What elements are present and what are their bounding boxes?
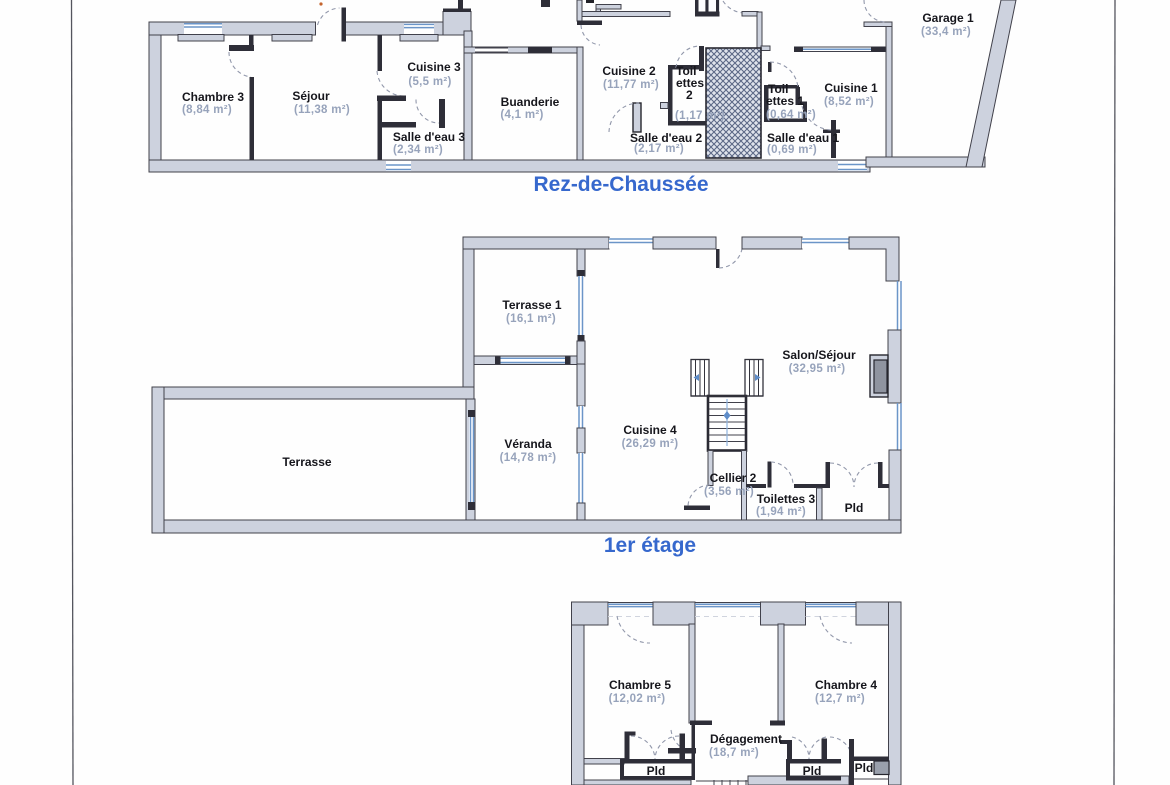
svg-text:1er étage: 1er étage xyxy=(604,534,696,557)
svg-text:(8,84 m²): (8,84 m²) xyxy=(182,104,232,116)
svg-text:Véranda: Véranda xyxy=(504,437,552,451)
svg-text:(12,7 m²): (12,7 m²) xyxy=(815,693,865,705)
svg-text:(4,1 m²): (4,1 m²) xyxy=(500,109,543,121)
svg-text:Chambre 3: Chambre 3 xyxy=(182,90,244,104)
svg-text:(1,17 m²): (1,17 m²) xyxy=(675,110,725,122)
svg-text:(16,1 m²): (16,1 m²) xyxy=(506,313,556,325)
svg-text:(2,17 m²): (2,17 m²) xyxy=(634,143,684,155)
svg-text:(14,78 m²): (14,78 m²) xyxy=(500,452,557,464)
svg-text:Salle d'eau 1: Salle d'eau 1 xyxy=(767,131,840,145)
svg-text:(11,77 m²): (11,77 m²) xyxy=(603,79,659,91)
svg-text:Cuisine 1: Cuisine 1 xyxy=(824,81,878,95)
svg-text:Pld: Pld xyxy=(845,501,864,515)
svg-text:(33,4 m²): (33,4 m²) xyxy=(921,26,971,38)
svg-text:2: 2 xyxy=(686,88,693,102)
svg-text:Séjour: Séjour xyxy=(292,89,330,103)
svg-text:Pld: Pld xyxy=(855,761,874,775)
svg-text:Chambre 4: Chambre 4 xyxy=(815,678,877,692)
svg-text:(12,02 m²): (12,02 m²) xyxy=(609,693,666,705)
svg-text:Cuisine 4: Cuisine 4 xyxy=(623,423,677,437)
svg-text:Garage 1: Garage 1 xyxy=(922,11,974,25)
svg-text:(18,7 m²): (18,7 m²) xyxy=(709,747,759,759)
svg-text:Rez-de-Chaussée: Rez-de-Chaussée xyxy=(533,173,708,196)
svg-text:(5,5 m²): (5,5 m²) xyxy=(408,76,451,88)
svg-text:Pld: Pld xyxy=(803,764,822,778)
svg-text:Terrasse: Terrasse xyxy=(282,455,331,469)
svg-text:Toilettes 3: Toilettes 3 xyxy=(757,492,816,506)
svg-text:(0,64 m²): (0,64 m²) xyxy=(766,109,816,121)
svg-text:Buanderie: Buanderie xyxy=(501,95,560,109)
svg-text:(1,94 m²): (1,94 m²) xyxy=(756,506,806,518)
svg-text:(8,52 m²): (8,52 m²) xyxy=(824,96,874,108)
svg-text:(0,69 m²): (0,69 m²) xyxy=(767,144,817,156)
svg-text:(2,34 m²): (2,34 m²) xyxy=(393,144,443,156)
svg-text:Terrasse 1: Terrasse 1 xyxy=(502,298,561,312)
svg-text:(26,29 m²): (26,29 m²) xyxy=(622,438,679,450)
svg-text:Cuisine 2: Cuisine 2 xyxy=(602,64,656,78)
svg-text:Dégagement: Dégagement xyxy=(710,732,782,746)
svg-text:Chambre 5: Chambre 5 xyxy=(609,678,671,692)
svg-text:(3,56 m²): (3,56 m²) xyxy=(704,486,754,498)
svg-text:ettes 1: ettes 1 xyxy=(766,94,804,108)
svg-text:(11,38 m²): (11,38 m²) xyxy=(294,104,350,116)
svg-text:Cellier 2: Cellier 2 xyxy=(710,471,757,485)
svg-text:Cuisine 3: Cuisine 3 xyxy=(407,60,461,74)
svg-text:(32,95 m²): (32,95 m²) xyxy=(789,363,846,375)
svg-text:Salle d'eau 3: Salle d'eau 3 xyxy=(393,130,466,144)
svg-text:Salon/Séjour: Salon/Séjour xyxy=(782,348,856,362)
svg-text:Pld: Pld xyxy=(647,764,666,778)
